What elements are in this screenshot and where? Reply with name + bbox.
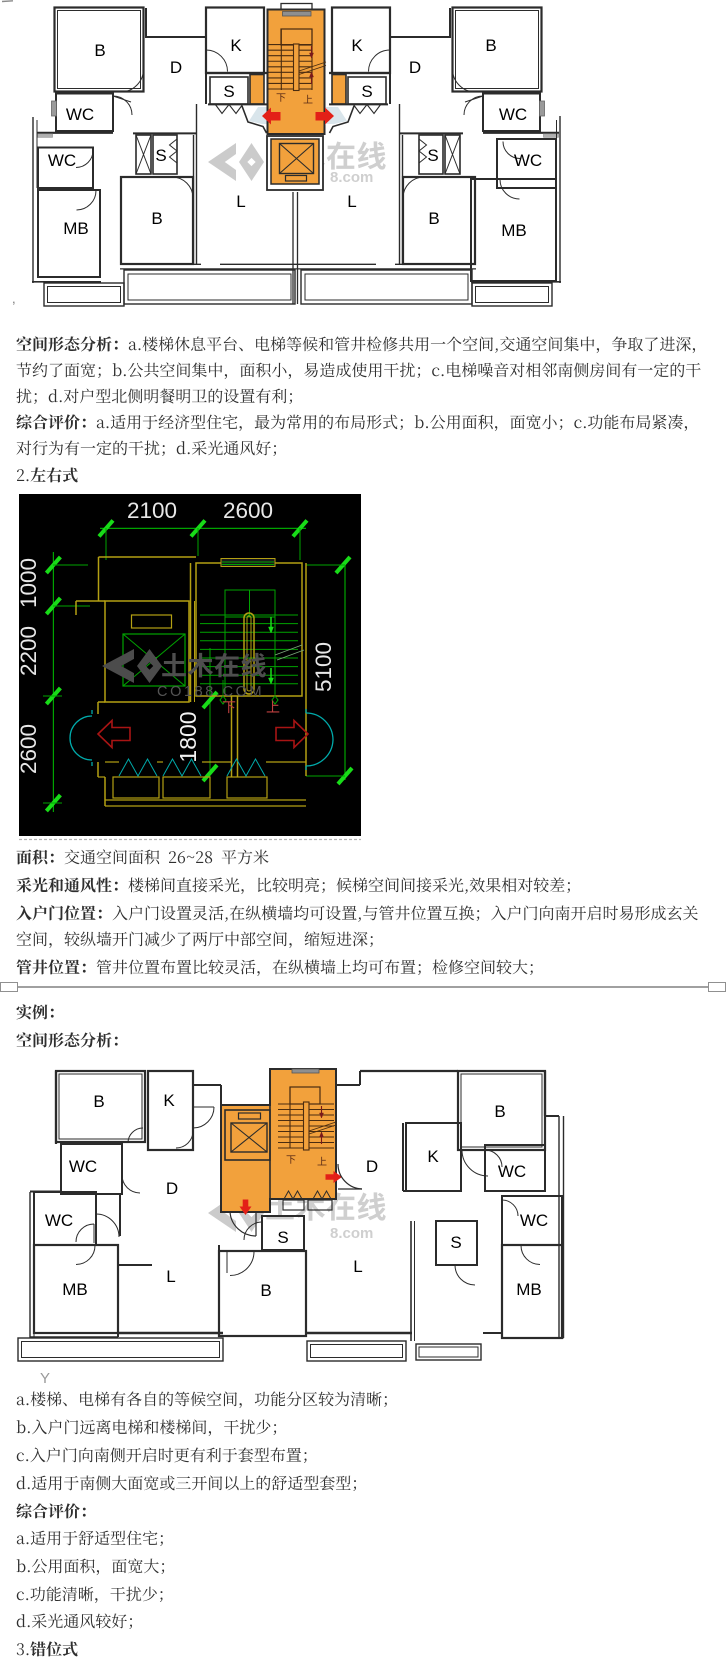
- svg-text:S: S: [155, 146, 166, 165]
- svg-text:WC: WC: [499, 105, 527, 124]
- svg-text:L: L: [166, 1267, 175, 1286]
- svg-text:B: B: [94, 41, 105, 60]
- svg-text:B: B: [260, 1281, 271, 1300]
- svg-text:B: B: [428, 209, 439, 228]
- svg-text:MB: MB: [501, 221, 527, 240]
- svg-text:WC: WC: [45, 1211, 73, 1230]
- svg-text:Y: Y: [40, 1370, 50, 1387]
- svg-text:1000: 1000: [16, 558, 41, 608]
- svg-text:MB: MB: [62, 1280, 88, 1299]
- svg-text:K: K: [427, 1147, 439, 1166]
- svg-text:K: K: [351, 36, 363, 55]
- svg-text:B: B: [93, 1092, 104, 1111]
- svg-text:S: S: [427, 146, 438, 165]
- svg-text:D: D: [170, 58, 182, 77]
- svg-text:WC: WC: [514, 151, 542, 170]
- svg-text:8.com: 8.com: [330, 169, 373, 186]
- svg-text:WC: WC: [48, 151, 76, 170]
- svg-text:5100: 5100: [311, 642, 336, 692]
- svg-text:2200: 2200: [16, 626, 41, 676]
- svg-text:CO188.COM: CO188.COM: [157, 684, 264, 700]
- svg-text:8.com: 8.com: [330, 1225, 373, 1242]
- svg-text:D: D: [366, 1157, 378, 1176]
- svg-text:K: K: [163, 1091, 175, 1110]
- svg-text:B: B: [151, 209, 162, 228]
- svg-text:WC: WC: [69, 1157, 97, 1176]
- svg-text:WC: WC: [520, 1211, 548, 1230]
- svg-text:S: S: [361, 82, 372, 101]
- svg-text:2100: 2100: [127, 498, 177, 523]
- svg-text:S: S: [223, 82, 234, 101]
- svg-text:L: L: [236, 192, 245, 211]
- svg-text:L: L: [353, 1257, 362, 1276]
- svg-text:WC: WC: [66, 105, 94, 124]
- svg-text:K: K: [230, 36, 242, 55]
- svg-text:MB: MB: [63, 219, 89, 238]
- svg-text:B: B: [494, 1102, 505, 1121]
- svg-text:MB: MB: [516, 1280, 542, 1299]
- svg-text:2600: 2600: [16, 724, 41, 774]
- svg-text:2600: 2600: [223, 498, 273, 523]
- svg-text:S: S: [450, 1233, 461, 1252]
- svg-text:WC: WC: [498, 1162, 526, 1181]
- svg-text:,: ,: [12, 291, 16, 306]
- svg-text:S: S: [277, 1228, 288, 1247]
- svg-text:D: D: [409, 58, 421, 77]
- svg-text:D: D: [166, 1179, 178, 1198]
- svg-text:L: L: [347, 192, 356, 211]
- svg-text:1800: 1800: [175, 711, 201, 762]
- svg-text:B: B: [485, 36, 496, 55]
